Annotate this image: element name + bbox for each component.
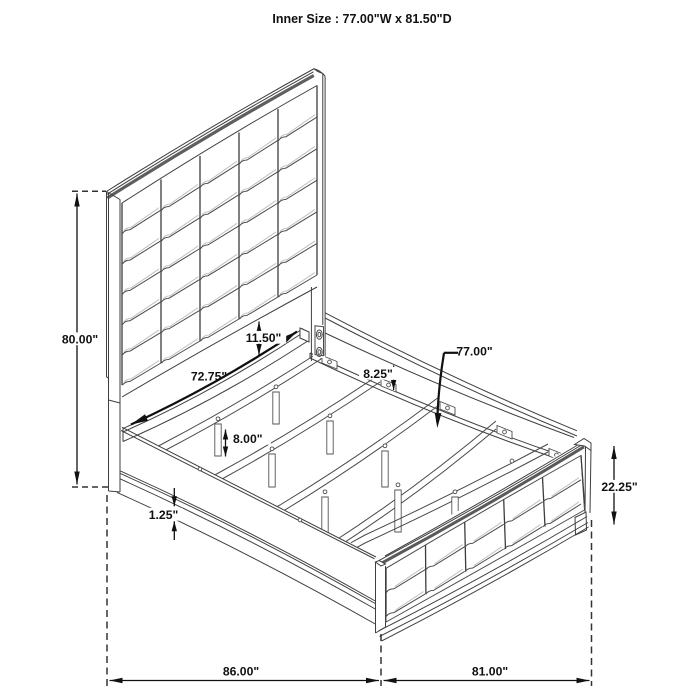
svg-text:72.75": 72.75" bbox=[191, 370, 227, 384]
svg-text:77.00": 77.00" bbox=[456, 344, 492, 358]
svg-text:8.25": 8.25" bbox=[363, 367, 393, 381]
svg-text:22.25": 22.25" bbox=[601, 480, 637, 494]
svg-text:11.50": 11.50" bbox=[246, 331, 282, 345]
svg-text:80.00": 80.00" bbox=[62, 333, 98, 347]
svg-text:81.00": 81.00" bbox=[472, 665, 508, 679]
svg-text:1.25": 1.25" bbox=[149, 508, 179, 522]
svg-text:86.00": 86.00" bbox=[223, 665, 259, 679]
svg-text:8.00": 8.00" bbox=[233, 432, 263, 446]
svg-text:Inner Size : 77.00"W x 81.50"D: Inner Size : 77.00"W x 81.50"D bbox=[272, 12, 451, 26]
